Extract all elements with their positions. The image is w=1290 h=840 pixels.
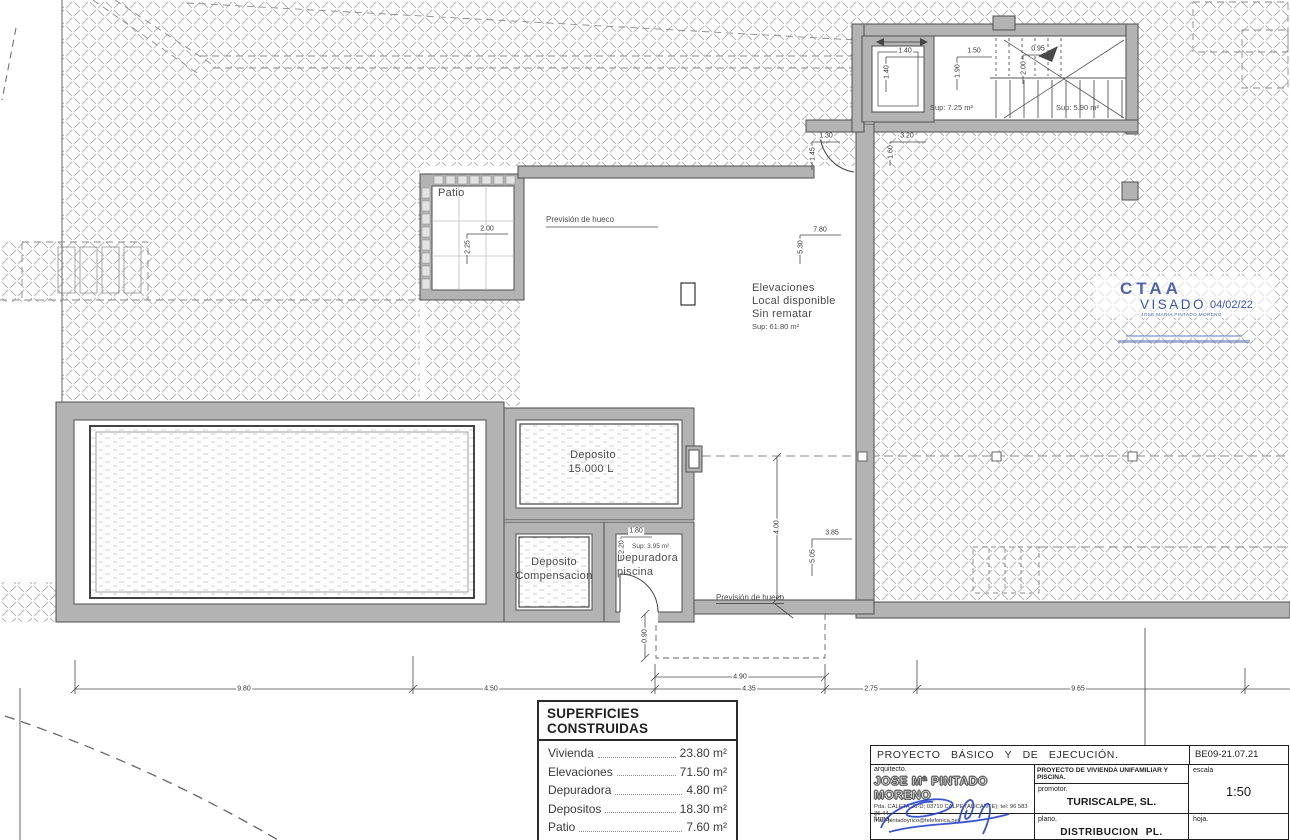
local-label-line2: Local disponible xyxy=(752,295,836,308)
stamp-smalltext-line2 xyxy=(1118,340,1250,343)
depuradora-label-line1: Depuradora xyxy=(617,552,678,565)
dim-pas-h: 1.60 xyxy=(888,144,895,160)
promoter-cell: promotor. TURISCALPE, SL. xyxy=(1035,784,1188,813)
project-type: PROYECTO BÁSICO Y DE EJECUCIÓN. xyxy=(871,746,1190,764)
row-label: Vivienda xyxy=(548,745,594,762)
project-title-cell: PROYECTO DE VIVIENDA UNIFAMILIAR Y PISCI… xyxy=(1035,765,1189,813)
row-value: 4.80 m² xyxy=(686,782,727,799)
plan-name-cell: plano. DISTRIBUCION PL. SEMISOTANO xyxy=(1035,814,1189,840)
dim-top-w: 7.80 xyxy=(812,227,828,234)
stamp-date: 04/02/22 xyxy=(1210,299,1253,311)
dim-top-h: 5.30 xyxy=(798,239,805,255)
dim-bottom-5: 9.65 xyxy=(1070,686,1086,693)
dim-hall1-w: 1.50 xyxy=(966,48,982,55)
built-areas-table: SUPERFICIES CONSTRUIDAS Vivienda23.80 m²… xyxy=(537,700,738,840)
prevision-hueco-bottom-label: Previsión de hueco xyxy=(716,593,784,604)
depuradora-sup-label: Sup: 3.95 m² xyxy=(632,543,669,550)
dim-dep-w: 1.80 xyxy=(628,528,644,535)
dim-lift-w: 1.40 xyxy=(897,48,913,55)
table-row: Depuradora4.80 m² xyxy=(539,781,736,800)
plan-name: DISTRIBUCION PL. SEMISOTANO xyxy=(1038,827,1185,840)
architect-label: arquitecto. xyxy=(874,766,1031,773)
table-row: Elevaciones71.50 m² xyxy=(539,763,736,782)
project-code: BE09-21.07.21 xyxy=(1190,746,1288,764)
scale-cell: escala 1:50 xyxy=(1189,765,1288,813)
dim-door-w: 1.30 xyxy=(818,133,834,140)
compensacion-label-line1: Deposito xyxy=(531,556,577,569)
dim-patio-h: 2.25 xyxy=(465,239,472,255)
stamp-smalltext-line1 xyxy=(1126,335,1242,337)
table-row: Depositos18.30 m² xyxy=(539,800,736,819)
dim-hueco-w: 4.90 xyxy=(732,674,748,681)
row-label: Depositos xyxy=(548,801,601,818)
depuradora-label-line2: piscina xyxy=(617,566,653,579)
dim-hall2-h: 2.00 xyxy=(1021,60,1028,76)
stamp-org: CTAA xyxy=(1120,279,1182,299)
plan-label: plano. xyxy=(1038,816,1185,823)
dim-lift-h: 1.40 xyxy=(884,64,891,80)
dim-bottom-3: 4.35 xyxy=(741,686,757,693)
local-label-line3: Sin rematar xyxy=(752,308,812,321)
scale-value: 1:50 xyxy=(1193,784,1284,799)
row-label: Elevaciones xyxy=(548,764,613,781)
dim-dep-h: 2.20 xyxy=(619,539,626,555)
row-value: 7.60 m² xyxy=(686,819,727,836)
row-value: 23.80 m² xyxy=(680,745,727,762)
signature-scribble xyxy=(875,790,1025,840)
local-sup-label: Sup: 61.80 m² xyxy=(752,322,799,331)
dim-patio-w: 2.00 xyxy=(479,226,495,233)
dim-hall2-w: 0.95 xyxy=(1030,46,1046,53)
dim-hueco-h: 0.90 xyxy=(642,628,649,644)
dim-pilar-w: 3.85 xyxy=(824,530,840,537)
row-value: 71.50 m² xyxy=(680,764,727,781)
sheet-label: hoja. xyxy=(1193,816,1284,823)
local-label-line1: Elevaciones xyxy=(752,282,815,295)
sup-ascensor-label: Sup: 7.25 m² xyxy=(930,103,973,112)
floorplan-canvas: Patio Previsión de hueco Previsión de hu… xyxy=(0,0,1290,840)
table-row: Vivienda23.80 m² xyxy=(539,744,736,763)
table-row: Patio7.60 m² xyxy=(539,818,736,837)
stamp-holder: JOSE MARIA PINTADO MORENO xyxy=(1141,312,1222,317)
compensacion-label-line2: Compensacion xyxy=(516,570,593,583)
dim-room-h: 4.00 xyxy=(774,519,781,535)
table-row: Voladizo4.40 m² xyxy=(539,837,736,840)
areas-table-title: SUPERFICIES CONSTRUIDAS xyxy=(539,702,736,741)
dim-pas-w: 3.20 xyxy=(899,133,915,140)
dim-bottom-2: 4.50 xyxy=(483,686,499,693)
dim-hall1-h: 1.90 xyxy=(955,63,962,79)
promoter-label: promotor. xyxy=(1038,786,1068,793)
dim-pilar-h: 5.05 xyxy=(810,548,817,564)
deposito-label-line2: 15.000 L xyxy=(568,463,613,476)
title-block-row1: PROYECTO BÁSICO Y DE EJECUCIÓN. BE09-21.… xyxy=(871,746,1288,765)
sup-escalera-label: Sup: 5.90 m² xyxy=(1056,103,1099,112)
dim-bottom-4: 2.75 xyxy=(863,686,879,693)
prevision-hueco-top-label: Previsión de hueco xyxy=(546,215,614,225)
project-title: PROYECTO DE VIVIENDA UNIFAMILIAR Y PISCI… xyxy=(1035,765,1188,784)
row-value: 18.30 m² xyxy=(680,801,727,818)
depuradora-door-opening xyxy=(620,610,658,624)
dim-door-h: 1.45 xyxy=(810,146,817,162)
promoter-name: TURISCALPE, SL. xyxy=(1035,796,1188,808)
deposito-label-line1: Deposito xyxy=(570,449,616,462)
sheet-cell: hoja. xyxy=(1189,814,1288,840)
pillar xyxy=(681,283,695,305)
patio-label: Patio xyxy=(438,187,465,200)
dim-bottom-1: 9.80 xyxy=(236,686,252,693)
stamp-visado: VISADO xyxy=(1140,297,1206,312)
row-label: Patio xyxy=(548,819,575,836)
scale-label: escala xyxy=(1193,767,1284,774)
row-label: Depuradora xyxy=(548,782,611,799)
